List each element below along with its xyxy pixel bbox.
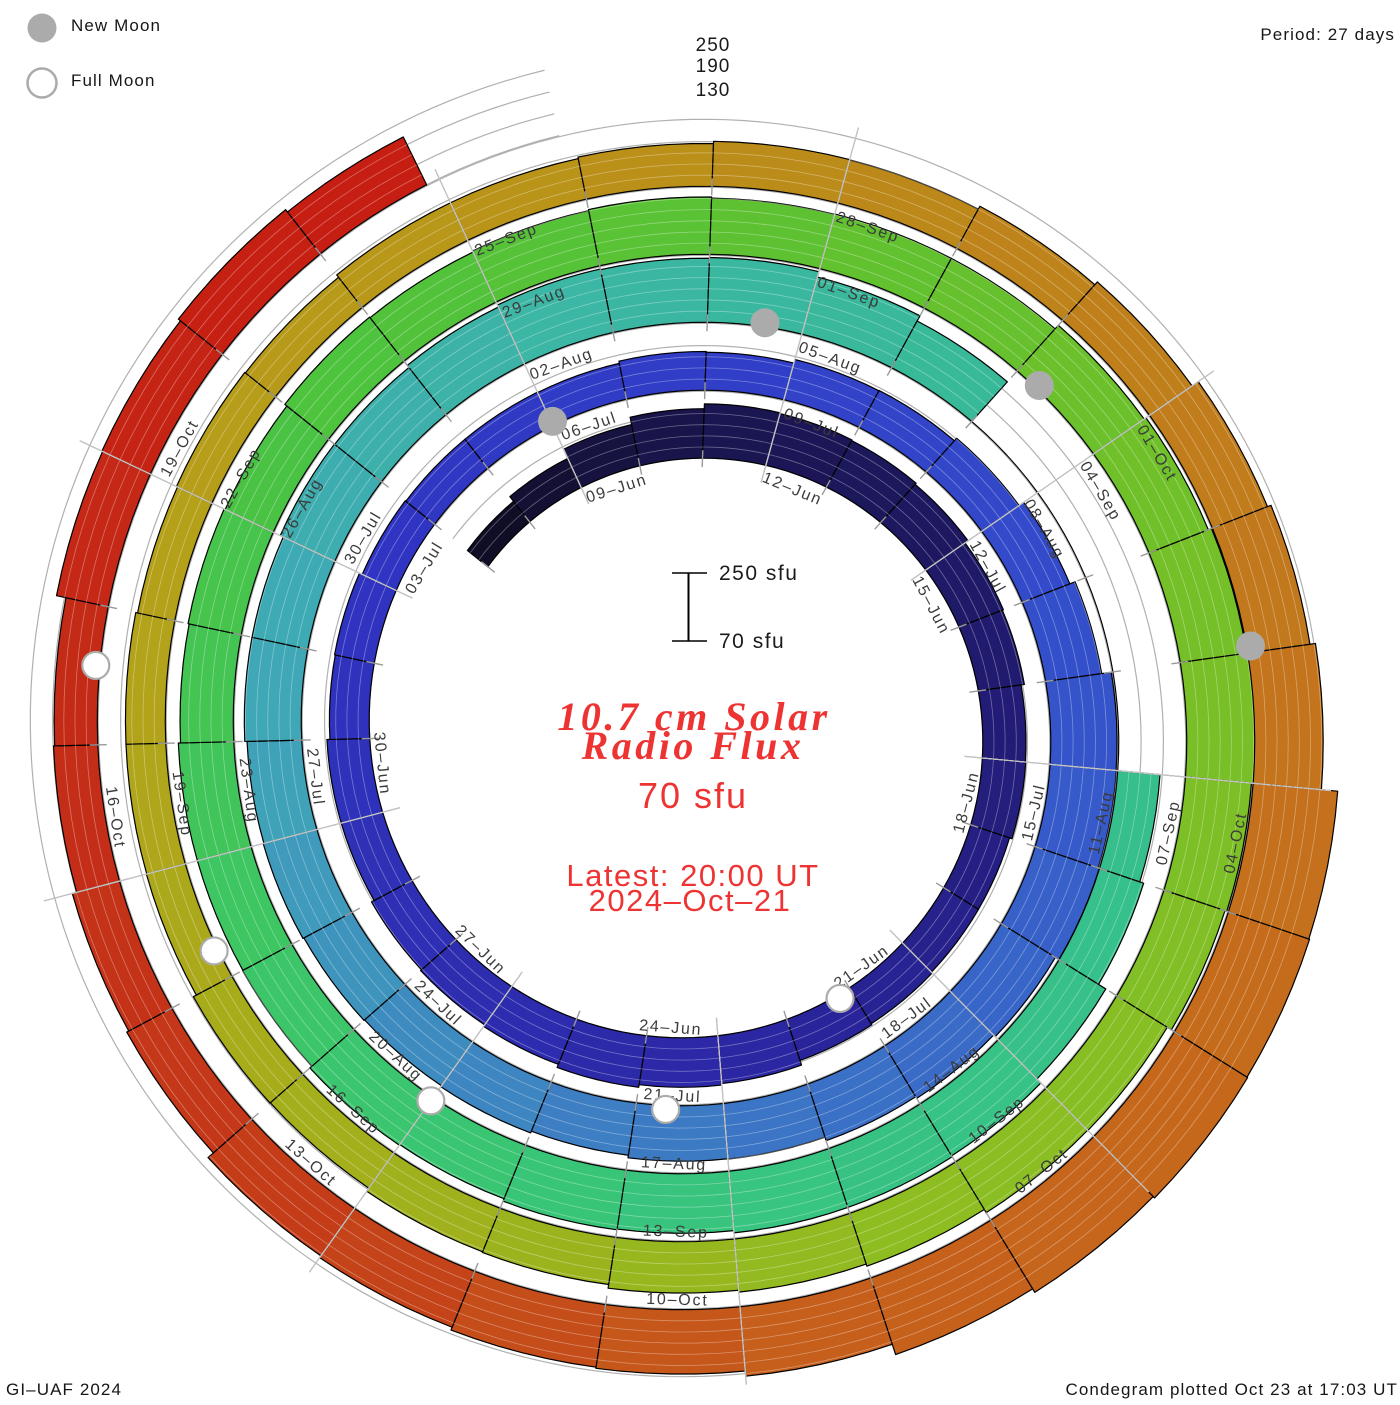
svg-text:Full Moon: Full Moon <box>71 71 156 90</box>
svg-text:GI–UAF 2024: GI–UAF 2024 <box>6 1380 122 1399</box>
svg-text:13–Sep: 13–Sep <box>642 1223 709 1242</box>
svg-text:250 sfu: 250 sfu <box>719 562 798 585</box>
svg-text:130: 130 <box>696 80 731 101</box>
svg-text:17–Aug: 17–Aug <box>641 1154 708 1174</box>
svg-text:New Moon: New Moon <box>71 16 161 35</box>
svg-text:Condegram plotted Oct 23 at 17: Condegram plotted Oct 23 at 17:03 UT <box>1065 1380 1398 1399</box>
svg-text:Period: 27 days: Period: 27 days <box>1260 25 1395 44</box>
svg-text:250: 250 <box>696 35 731 56</box>
svg-text:70 sfu: 70 sfu <box>719 630 785 653</box>
svg-text:70 sfu: 70 sfu <box>638 775 748 816</box>
svg-text:2024–Oct–21: 2024–Oct–21 <box>589 883 792 918</box>
svg-text:Radio Flux: Radio Flux <box>581 723 805 768</box>
svg-text:190: 190 <box>696 56 731 77</box>
svg-text:10–Oct: 10–Oct <box>646 1291 709 1310</box>
